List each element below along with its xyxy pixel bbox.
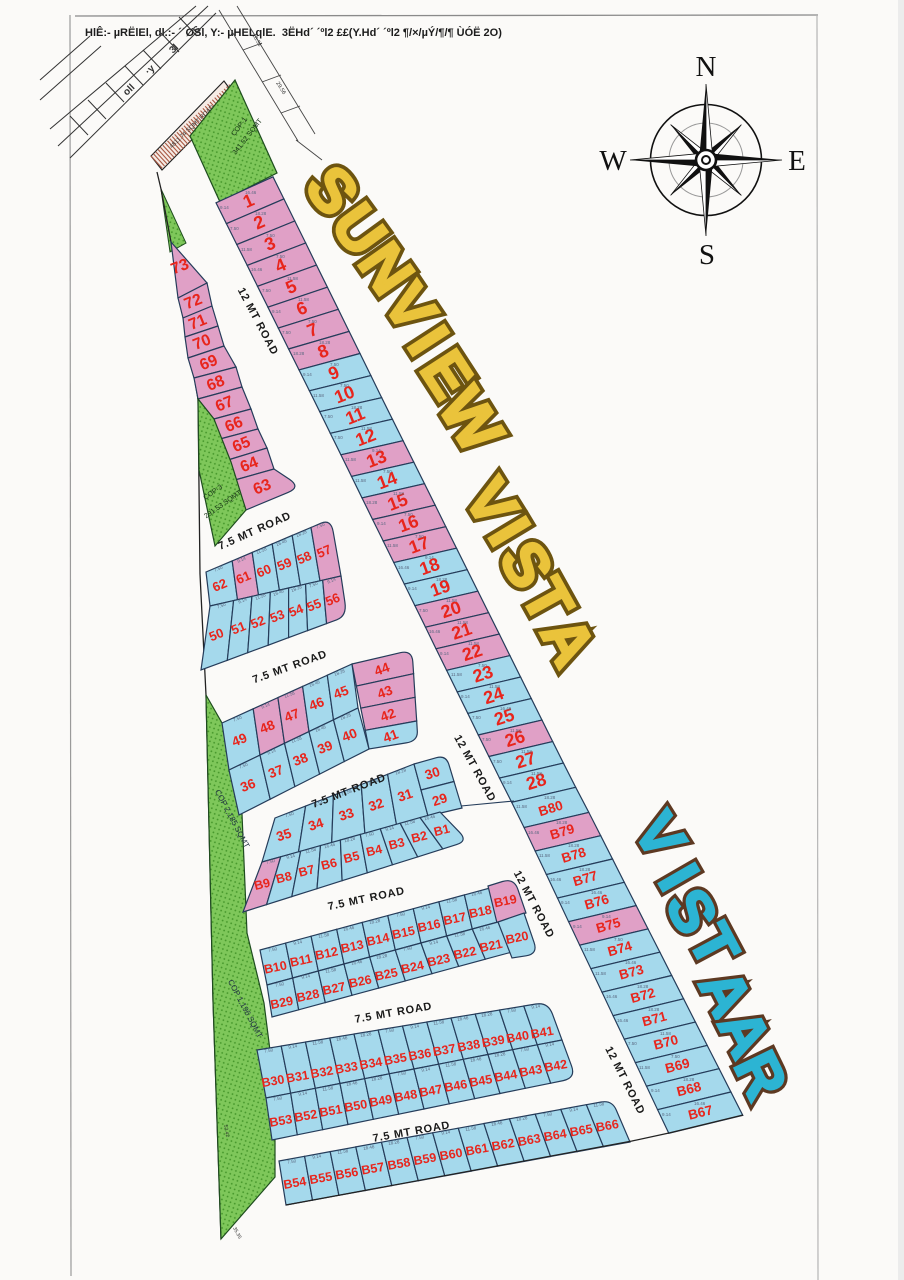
svg-text:18.28: 18.28: [556, 820, 568, 825]
svg-text:11.58: 11.58: [287, 276, 298, 281]
svg-text:7.50: 7.50: [276, 254, 285, 259]
svg-text:11.58: 11.58: [446, 598, 457, 603]
svg-text:7.50: 7.50: [340, 383, 349, 388]
svg-text:16.46: 16.46: [528, 830, 540, 835]
svg-text:7.50: 7.50: [404, 512, 413, 517]
svg-text:16.46: 16.46: [617, 1018, 629, 1023]
svg-text:16.46: 16.46: [429, 629, 441, 634]
svg-text:9.14: 9.14: [461, 694, 470, 699]
svg-text:9.14: 9.14: [573, 924, 582, 929]
svg-text:9.14: 9.14: [377, 521, 386, 526]
svg-text:11.58: 11.58: [298, 297, 309, 302]
svg-text:18.28: 18.28: [637, 984, 649, 989]
svg-text:7.50: 7.50: [628, 1041, 637, 1046]
svg-text:11.58: 11.58: [521, 749, 532, 754]
svg-text:11.58: 11.58: [639, 1065, 650, 1070]
svg-text:7.50: 7.50: [419, 608, 428, 613]
svg-text:HlÊ:- µRËlEl, dl.:- ´´ØSl, Y:-: HlÊ:- µRËlEl, dl.:- ´´ØSl, Y:- µHELqlE. …: [85, 26, 502, 39]
svg-text:7.50: 7.50: [614, 937, 623, 942]
svg-text:11.58: 11.58: [595, 971, 606, 976]
svg-text:11.58: 11.58: [387, 543, 398, 548]
svg-text:7.50: 7.50: [324, 414, 333, 419]
svg-text:18.28: 18.28: [568, 843, 580, 848]
svg-text:9.14: 9.14: [662, 1112, 671, 1117]
svg-text:18.28: 18.28: [579, 867, 591, 872]
svg-text:18.28: 18.28: [436, 577, 448, 582]
svg-text:W: W: [599, 145, 627, 177]
svg-text:11.58: 11.58: [241, 247, 252, 252]
svg-text:9.14: 9.14: [303, 372, 312, 377]
svg-text:9.14: 9.14: [651, 1088, 660, 1093]
svg-text:18.28: 18.28: [648, 1007, 660, 1012]
svg-text:11.58: 11.58: [361, 426, 372, 431]
svg-text:7.50: 7.50: [308, 319, 317, 324]
svg-text:18.28: 18.28: [683, 1077, 695, 1082]
svg-text:9.14: 9.14: [372, 448, 381, 453]
svg-text:9.14: 9.14: [220, 205, 229, 210]
svg-text:16.46: 16.46: [550, 877, 562, 882]
svg-text:11.58: 11.58: [451, 672, 462, 677]
svg-text:7.50: 7.50: [415, 534, 424, 539]
svg-text:11.58: 11.58: [393, 491, 404, 496]
svg-text:18.28: 18.28: [544, 795, 556, 800]
svg-text:16.46: 16.46: [398, 565, 410, 570]
svg-text:N: N: [696, 51, 717, 83]
svg-text:7.50: 7.50: [482, 737, 491, 742]
svg-text:16.46: 16.46: [245, 190, 257, 195]
svg-text:11.58: 11.58: [531, 771, 542, 776]
svg-text:9.14: 9.14: [440, 651, 449, 656]
svg-text:11.58: 11.58: [660, 1031, 671, 1036]
svg-text:18.28: 18.28: [366, 500, 378, 505]
svg-text:E: E: [788, 145, 806, 177]
svg-text:7.50: 7.50: [334, 435, 343, 440]
svg-text:16.46: 16.46: [251, 267, 263, 272]
svg-text:7.50: 7.50: [383, 469, 392, 474]
svg-text:11.58: 11.58: [584, 947, 595, 952]
svg-text:16.46: 16.46: [606, 994, 618, 999]
svg-text:11.58: 11.58: [468, 641, 479, 646]
svg-text:9.14: 9.14: [602, 914, 611, 919]
svg-text:16.46: 16.46: [500, 706, 512, 711]
svg-text:11.58: 11.58: [457, 620, 468, 625]
svg-text:11.58: 11.58: [516, 804, 527, 809]
svg-text:S: S: [699, 239, 715, 271]
svg-text:9.14: 9.14: [425, 555, 434, 560]
svg-text:9.14: 9.14: [408, 586, 417, 591]
svg-text:11.58: 11.58: [510, 728, 521, 733]
svg-text:11.58: 11.58: [345, 457, 356, 462]
svg-text:7.50: 7.50: [262, 288, 271, 293]
svg-text:11.58: 11.58: [539, 853, 550, 858]
svg-text:11.58: 11.58: [313, 393, 324, 398]
svg-text:7.50: 7.50: [472, 715, 481, 720]
svg-text:9.14: 9.14: [272, 309, 281, 314]
svg-text:16.46: 16.46: [591, 890, 603, 895]
svg-text:18.28: 18.28: [293, 351, 305, 356]
svg-text:16.46: 16.46: [694, 1101, 706, 1106]
svg-text:7.50: 7.50: [671, 1054, 680, 1059]
svg-text:7.50: 7.50: [478, 663, 487, 668]
svg-text:11.58: 11.58: [355, 478, 366, 483]
svg-text:7.50: 7.50: [330, 362, 339, 367]
svg-text:18.28: 18.28: [255, 211, 267, 216]
svg-text:18.28: 18.28: [351, 405, 363, 410]
svg-text:7.50: 7.50: [282, 330, 291, 335]
svg-text:16.46: 16.46: [625, 960, 637, 965]
svg-text:11.58: 11.58: [489, 684, 500, 689]
svg-text:7.50: 7.50: [230, 226, 239, 231]
svg-text:7.50: 7.50: [266, 233, 275, 238]
svg-text:7.50: 7.50: [493, 759, 502, 764]
svg-text:18.28: 18.28: [319, 340, 331, 345]
svg-text:9.14: 9.14: [503, 780, 512, 785]
svg-text:9.14: 9.14: [561, 900, 570, 905]
